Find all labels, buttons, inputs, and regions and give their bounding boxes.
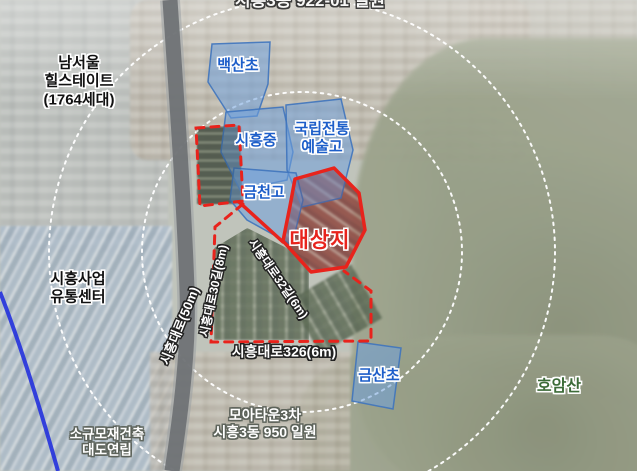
geumsan-elementary-zone <box>352 342 401 409</box>
baeksan-elementary-zone <box>208 42 270 118</box>
stream-line <box>0 292 58 471</box>
target-site-solid-boundary <box>283 168 365 272</box>
satellite-map: 시흥3동 922-01 일원 남서울 힐스테이트 (1764세대) 백산초 시흥… <box>0 0 637 471</box>
apartment-dashed-boundary <box>196 125 243 206</box>
map-annotations <box>0 0 637 471</box>
